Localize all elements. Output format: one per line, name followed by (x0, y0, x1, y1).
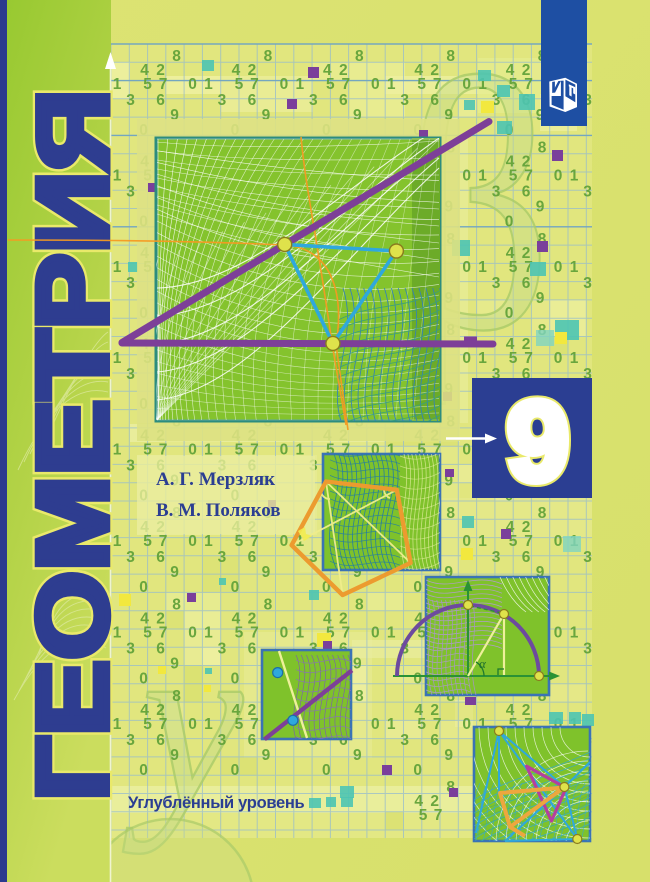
svg-text:3: 3 (218, 640, 227, 657)
svg-text:1: 1 (295, 76, 304, 93)
svg-text:1: 1 (478, 350, 487, 367)
svg-text:3: 3 (400, 92, 409, 109)
svg-text:0: 0 (188, 533, 197, 550)
svg-text:0: 0 (371, 716, 380, 733)
svg-text:0: 0 (462, 350, 471, 367)
svg-text:1: 1 (204, 76, 213, 93)
svg-text:Углублённый уровень: Углублённый уровень (128, 794, 305, 812)
svg-text:9: 9 (262, 747, 271, 764)
svg-text:5: 5 (509, 350, 518, 367)
svg-text:0: 0 (554, 167, 563, 184)
svg-text:7: 7 (524, 76, 533, 93)
svg-text:3: 3 (583, 549, 592, 566)
svg-text:0: 0 (505, 213, 514, 230)
svg-text:0: 0 (413, 579, 422, 596)
svg-text:6: 6 (156, 549, 165, 566)
svg-text:7: 7 (341, 76, 350, 93)
svg-text:6: 6 (156, 732, 165, 749)
svg-text:1: 1 (295, 624, 304, 641)
svg-text:7: 7 (524, 533, 533, 550)
svg-text:0: 0 (231, 579, 240, 596)
svg-text:5: 5 (143, 76, 152, 93)
svg-text:1: 1 (204, 716, 213, 733)
svg-text:3: 3 (400, 732, 409, 749)
svg-text:0: 0 (371, 76, 380, 93)
svg-text:0: 0 (139, 762, 148, 779)
svg-text:5: 5 (509, 76, 518, 93)
svg-text:6: 6 (156, 92, 165, 109)
svg-text:1: 1 (478, 167, 487, 184)
svg-text:3: 3 (309, 92, 318, 109)
svg-text:6: 6 (430, 92, 439, 109)
svg-text:8: 8 (355, 48, 364, 65)
svg-text:7: 7 (524, 350, 533, 367)
svg-text:9: 9 (170, 747, 179, 764)
svg-text:5: 5 (143, 533, 152, 550)
svg-text:8: 8 (538, 139, 547, 156)
svg-text:0: 0 (280, 624, 289, 641)
svg-text:7: 7 (250, 624, 259, 641)
svg-text:А. Г. Мерзляк: А. Г. Мерзляк (156, 469, 275, 490)
svg-text:5: 5 (143, 716, 152, 733)
svg-text:0: 0 (188, 76, 197, 93)
svg-text:3: 3 (218, 549, 227, 566)
svg-text:5: 5 (143, 624, 152, 641)
svg-text:8: 8 (446, 48, 455, 65)
svg-text:7: 7 (433, 76, 442, 93)
svg-text:0: 0 (462, 716, 471, 733)
svg-text:1: 1 (478, 533, 487, 550)
svg-text:6: 6 (522, 549, 531, 566)
svg-text:0: 0 (322, 762, 331, 779)
svg-text:9: 9 (353, 747, 362, 764)
svg-text:1: 1 (204, 624, 213, 641)
svg-text:0: 0 (462, 76, 471, 93)
svg-text:8: 8 (172, 48, 181, 65)
svg-text:8: 8 (538, 505, 547, 522)
svg-text:5: 5 (417, 716, 426, 733)
svg-text:7: 7 (524, 167, 533, 184)
svg-text:9: 9 (536, 198, 545, 215)
svg-text:5: 5 (235, 533, 244, 550)
svg-text:7: 7 (159, 624, 168, 641)
svg-text:0: 0 (462, 259, 471, 276)
svg-text:0: 0 (554, 350, 563, 367)
svg-text:0: 0 (280, 76, 289, 93)
svg-text:8: 8 (355, 596, 364, 613)
svg-text:0: 0 (462, 533, 471, 550)
svg-text:5: 5 (417, 76, 426, 93)
svg-text:0: 0 (371, 624, 380, 641)
svg-text:5: 5 (235, 716, 244, 733)
svg-text:5: 5 (235, 624, 244, 641)
svg-text:6: 6 (248, 732, 257, 749)
svg-text:3: 3 (583, 275, 592, 292)
svg-text:1: 1 (387, 716, 396, 733)
svg-text:8: 8 (172, 688, 181, 705)
svg-text:6: 6 (156, 640, 165, 657)
svg-text:5: 5 (509, 167, 518, 184)
svg-text:9: 9 (444, 747, 453, 764)
svg-text:7: 7 (250, 716, 259, 733)
svg-text:7: 7 (250, 533, 259, 550)
svg-text:7: 7 (159, 76, 168, 93)
svg-text:0: 0 (188, 624, 197, 641)
svg-text:7: 7 (434, 807, 443, 824)
svg-text:0: 0 (139, 579, 148, 596)
svg-text:1: 1 (570, 624, 579, 641)
svg-text:6: 6 (248, 640, 257, 657)
svg-text:7: 7 (341, 624, 350, 641)
svg-text:1: 1 (387, 624, 396, 641)
svg-text:3: 3 (583, 183, 592, 200)
svg-text:3: 3 (492, 183, 501, 200)
svg-text:α: α (479, 656, 487, 671)
svg-text:3: 3 (492, 549, 501, 566)
svg-text:0: 0 (139, 670, 148, 687)
svg-text:6: 6 (248, 92, 257, 109)
svg-text:9: 9 (507, 379, 569, 504)
svg-text:0: 0 (231, 762, 240, 779)
svg-text:6: 6 (522, 275, 531, 292)
svg-text:8: 8 (355, 688, 364, 705)
svg-text:0: 0 (554, 533, 563, 550)
svg-text:1: 1 (478, 259, 487, 276)
svg-text:8: 8 (264, 596, 273, 613)
svg-text:0: 0 (462, 167, 471, 184)
svg-text:0: 0 (554, 259, 563, 276)
svg-text:5: 5 (509, 259, 518, 276)
svg-text:ГЕОМЕТРИЯ: ГЕОМЕТРИЯ (17, 89, 129, 801)
svg-text:8: 8 (172, 596, 181, 613)
svg-text:9: 9 (353, 655, 362, 672)
svg-text:7: 7 (159, 716, 168, 733)
svg-text:5: 5 (235, 76, 244, 93)
svg-text:9: 9 (262, 564, 271, 581)
svg-text:3: 3 (218, 732, 227, 749)
svg-text:7: 7 (250, 76, 259, 93)
svg-text:5: 5 (326, 76, 335, 93)
svg-text:0: 0 (280, 533, 289, 550)
svg-text:3: 3 (492, 275, 501, 292)
svg-text:3: 3 (583, 640, 592, 657)
svg-text:1: 1 (387, 76, 396, 93)
svg-text:7: 7 (433, 716, 442, 733)
svg-text:6: 6 (430, 732, 439, 749)
svg-text:1: 1 (204, 533, 213, 550)
svg-text:1: 1 (570, 167, 579, 184)
svg-text:В. М. Поляков: В. М. Поляков (156, 500, 281, 521)
svg-text:9: 9 (170, 655, 179, 672)
svg-text:6: 6 (339, 92, 348, 109)
svg-text:1: 1 (570, 350, 579, 367)
svg-text:5: 5 (419, 807, 428, 824)
svg-text:8: 8 (446, 505, 455, 522)
svg-text:0: 0 (505, 305, 514, 322)
svg-text:0: 0 (554, 624, 563, 641)
svg-text:9: 9 (170, 564, 179, 581)
svg-text:9: 9 (536, 290, 545, 307)
svg-text:6: 6 (522, 183, 531, 200)
svg-text:0: 0 (413, 670, 422, 687)
svg-text:6: 6 (248, 549, 257, 566)
svg-text:0: 0 (188, 716, 197, 733)
svg-text:0: 0 (413, 762, 422, 779)
svg-text:8: 8 (264, 48, 273, 65)
svg-text:7: 7 (159, 533, 168, 550)
svg-text:3: 3 (218, 92, 227, 109)
svg-text:0: 0 (462, 442, 471, 459)
svg-text:1: 1 (570, 259, 579, 276)
svg-text:0: 0 (231, 670, 240, 687)
